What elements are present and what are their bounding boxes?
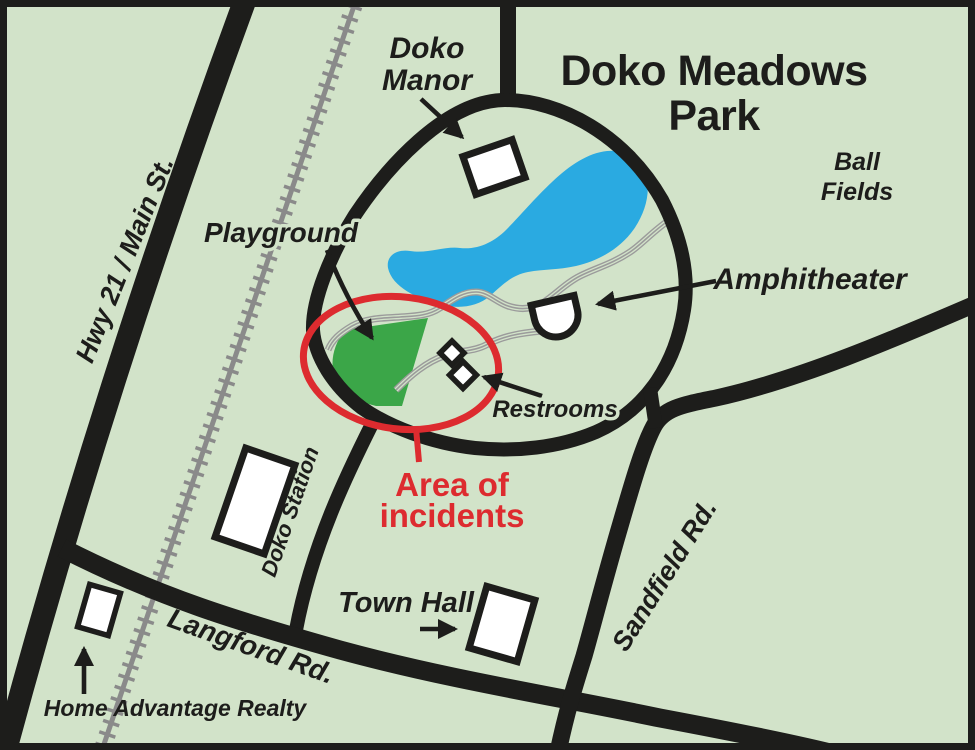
doko-meadows-park-map: Doko Meadows Park Doko Manor Ball Fields… — [0, 0, 975, 750]
restrooms-label: Restrooms — [492, 396, 617, 423]
incident-leader-line — [416, 428, 419, 462]
ball-fields-label-line2: Fields — [821, 178, 893, 206]
amphitheater-label: Amphitheater — [712, 263, 909, 296]
home-advantage-realty-label: Home Advantage Realty — [44, 695, 308, 721]
park-title-line2: Park — [668, 92, 760, 140]
town-hall-label: Town Hall — [338, 587, 475, 619]
park-title-line1: Doko Meadows — [561, 47, 868, 95]
map-canvas: Doko Meadows Park Doko Manor Ball Fields… — [0, 0, 975, 750]
doko-manor-label-line2: Manor — [382, 64, 474, 97]
loop-sandfield-junction — [650, 388, 656, 428]
area-of-incidents-label-line2: incidents — [380, 497, 525, 534]
ball-fields-label-line1: Ball — [834, 148, 881, 176]
playground-label: Playground — [204, 217, 359, 248]
doko-manor-label-line1: Doko — [390, 32, 465, 65]
